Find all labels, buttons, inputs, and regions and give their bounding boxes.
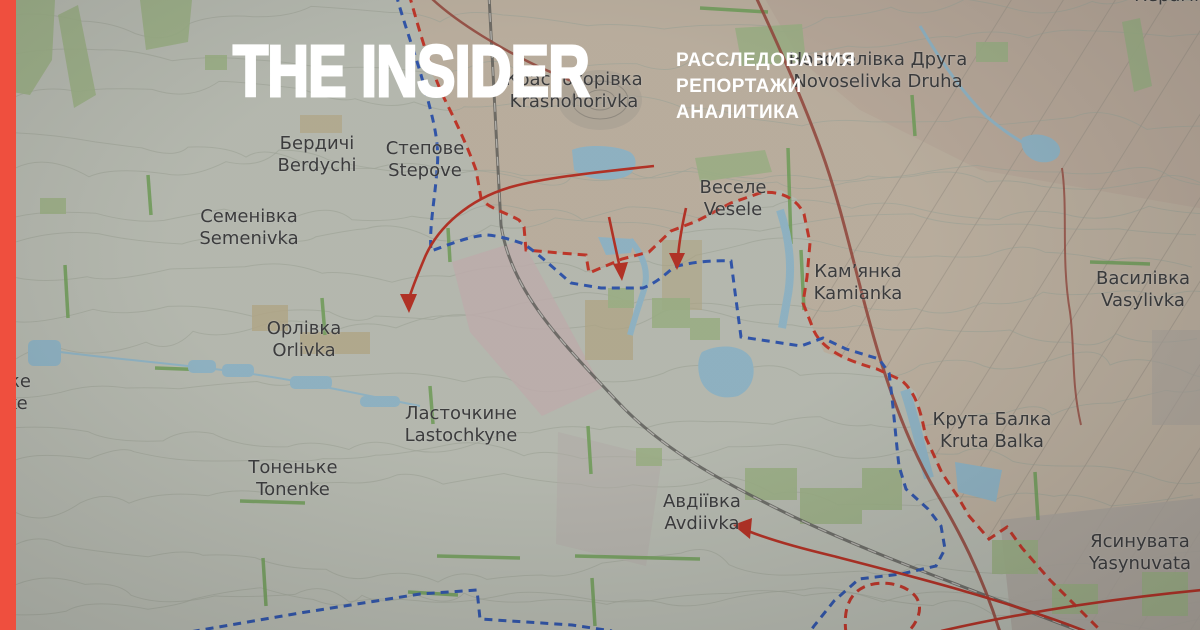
tagline-line-1: РАССЛЕДОВАНИЯ	[676, 48, 856, 74]
brand-tagline: РАССЛЕДОВАНИЯ РЕПОРТАЖИ АНАЛИТИКА	[676, 48, 856, 126]
tagline-line-3: АНАЛИТИКА	[676, 100, 856, 126]
the-insider-logo: THE INSIDER	[233, 36, 589, 108]
map-canvas	[0, 0, 1200, 630]
tagline-line-2: РЕПОРТАЖИ	[676, 74, 856, 100]
brand-accent-stripe	[0, 0, 16, 630]
og-image-card: БердичіBerdychiСтеповеStepoveСеменівкаSe…	[0, 0, 1200, 630]
